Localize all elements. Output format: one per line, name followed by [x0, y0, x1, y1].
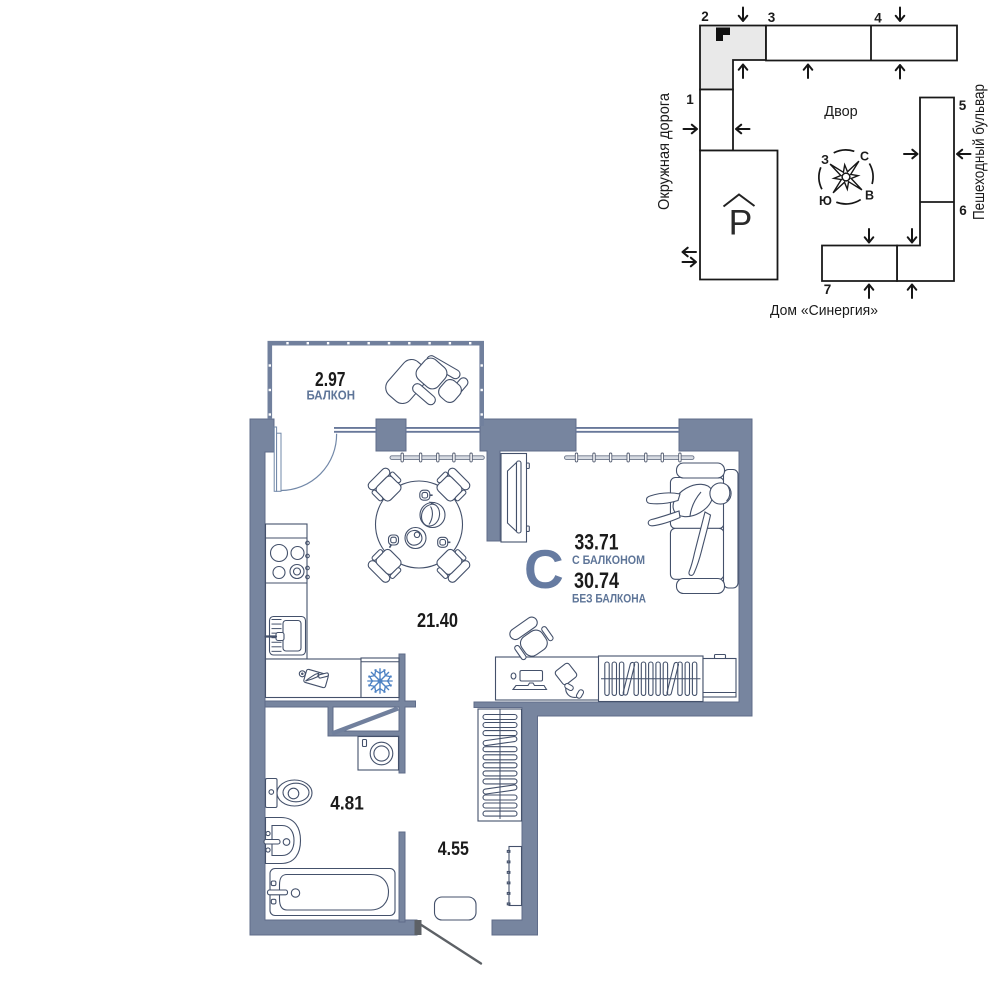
svg-text:Двор: Двор [824, 104, 858, 120]
svg-text:С БАЛКОНОМ: С БАЛКОНОМ [572, 553, 645, 567]
svg-text:С: С [860, 150, 869, 164]
svg-text:5: 5 [959, 98, 967, 113]
svg-text:Пешеходный бульвар: Пешеходный бульвар [971, 84, 988, 220]
svg-text:Дом «Синергия»: Дом «Синергия» [770, 303, 878, 319]
svg-text:33.71: 33.71 [575, 530, 619, 555]
svg-text:6: 6 [959, 203, 967, 218]
svg-text:Ю: Ю [819, 194, 832, 208]
svg-text:2: 2 [701, 9, 709, 24]
svg-text:4.55: 4.55 [438, 838, 469, 860]
svg-text:БЕЗ БАЛКОНА: БЕЗ БАЛКОНА [572, 592, 646, 606]
svg-text:Окружная дорога: Окружная дорога [656, 93, 673, 210]
svg-text:В: В [865, 189, 874, 203]
svg-text:4: 4 [874, 11, 882, 26]
svg-text:4.81: 4.81 [330, 793, 364, 815]
svg-text:P: P [729, 203, 753, 243]
svg-text:З: З [821, 153, 829, 167]
svg-text:БАЛКОН: БАЛКОН [307, 389, 356, 403]
svg-text:С: С [524, 538, 564, 600]
svg-text:21.40: 21.40 [417, 610, 458, 632]
svg-text:3: 3 [768, 10, 776, 25]
svg-text:7: 7 [824, 282, 832, 297]
svg-text:30.74: 30.74 [574, 568, 619, 593]
svg-text:1: 1 [686, 92, 694, 107]
